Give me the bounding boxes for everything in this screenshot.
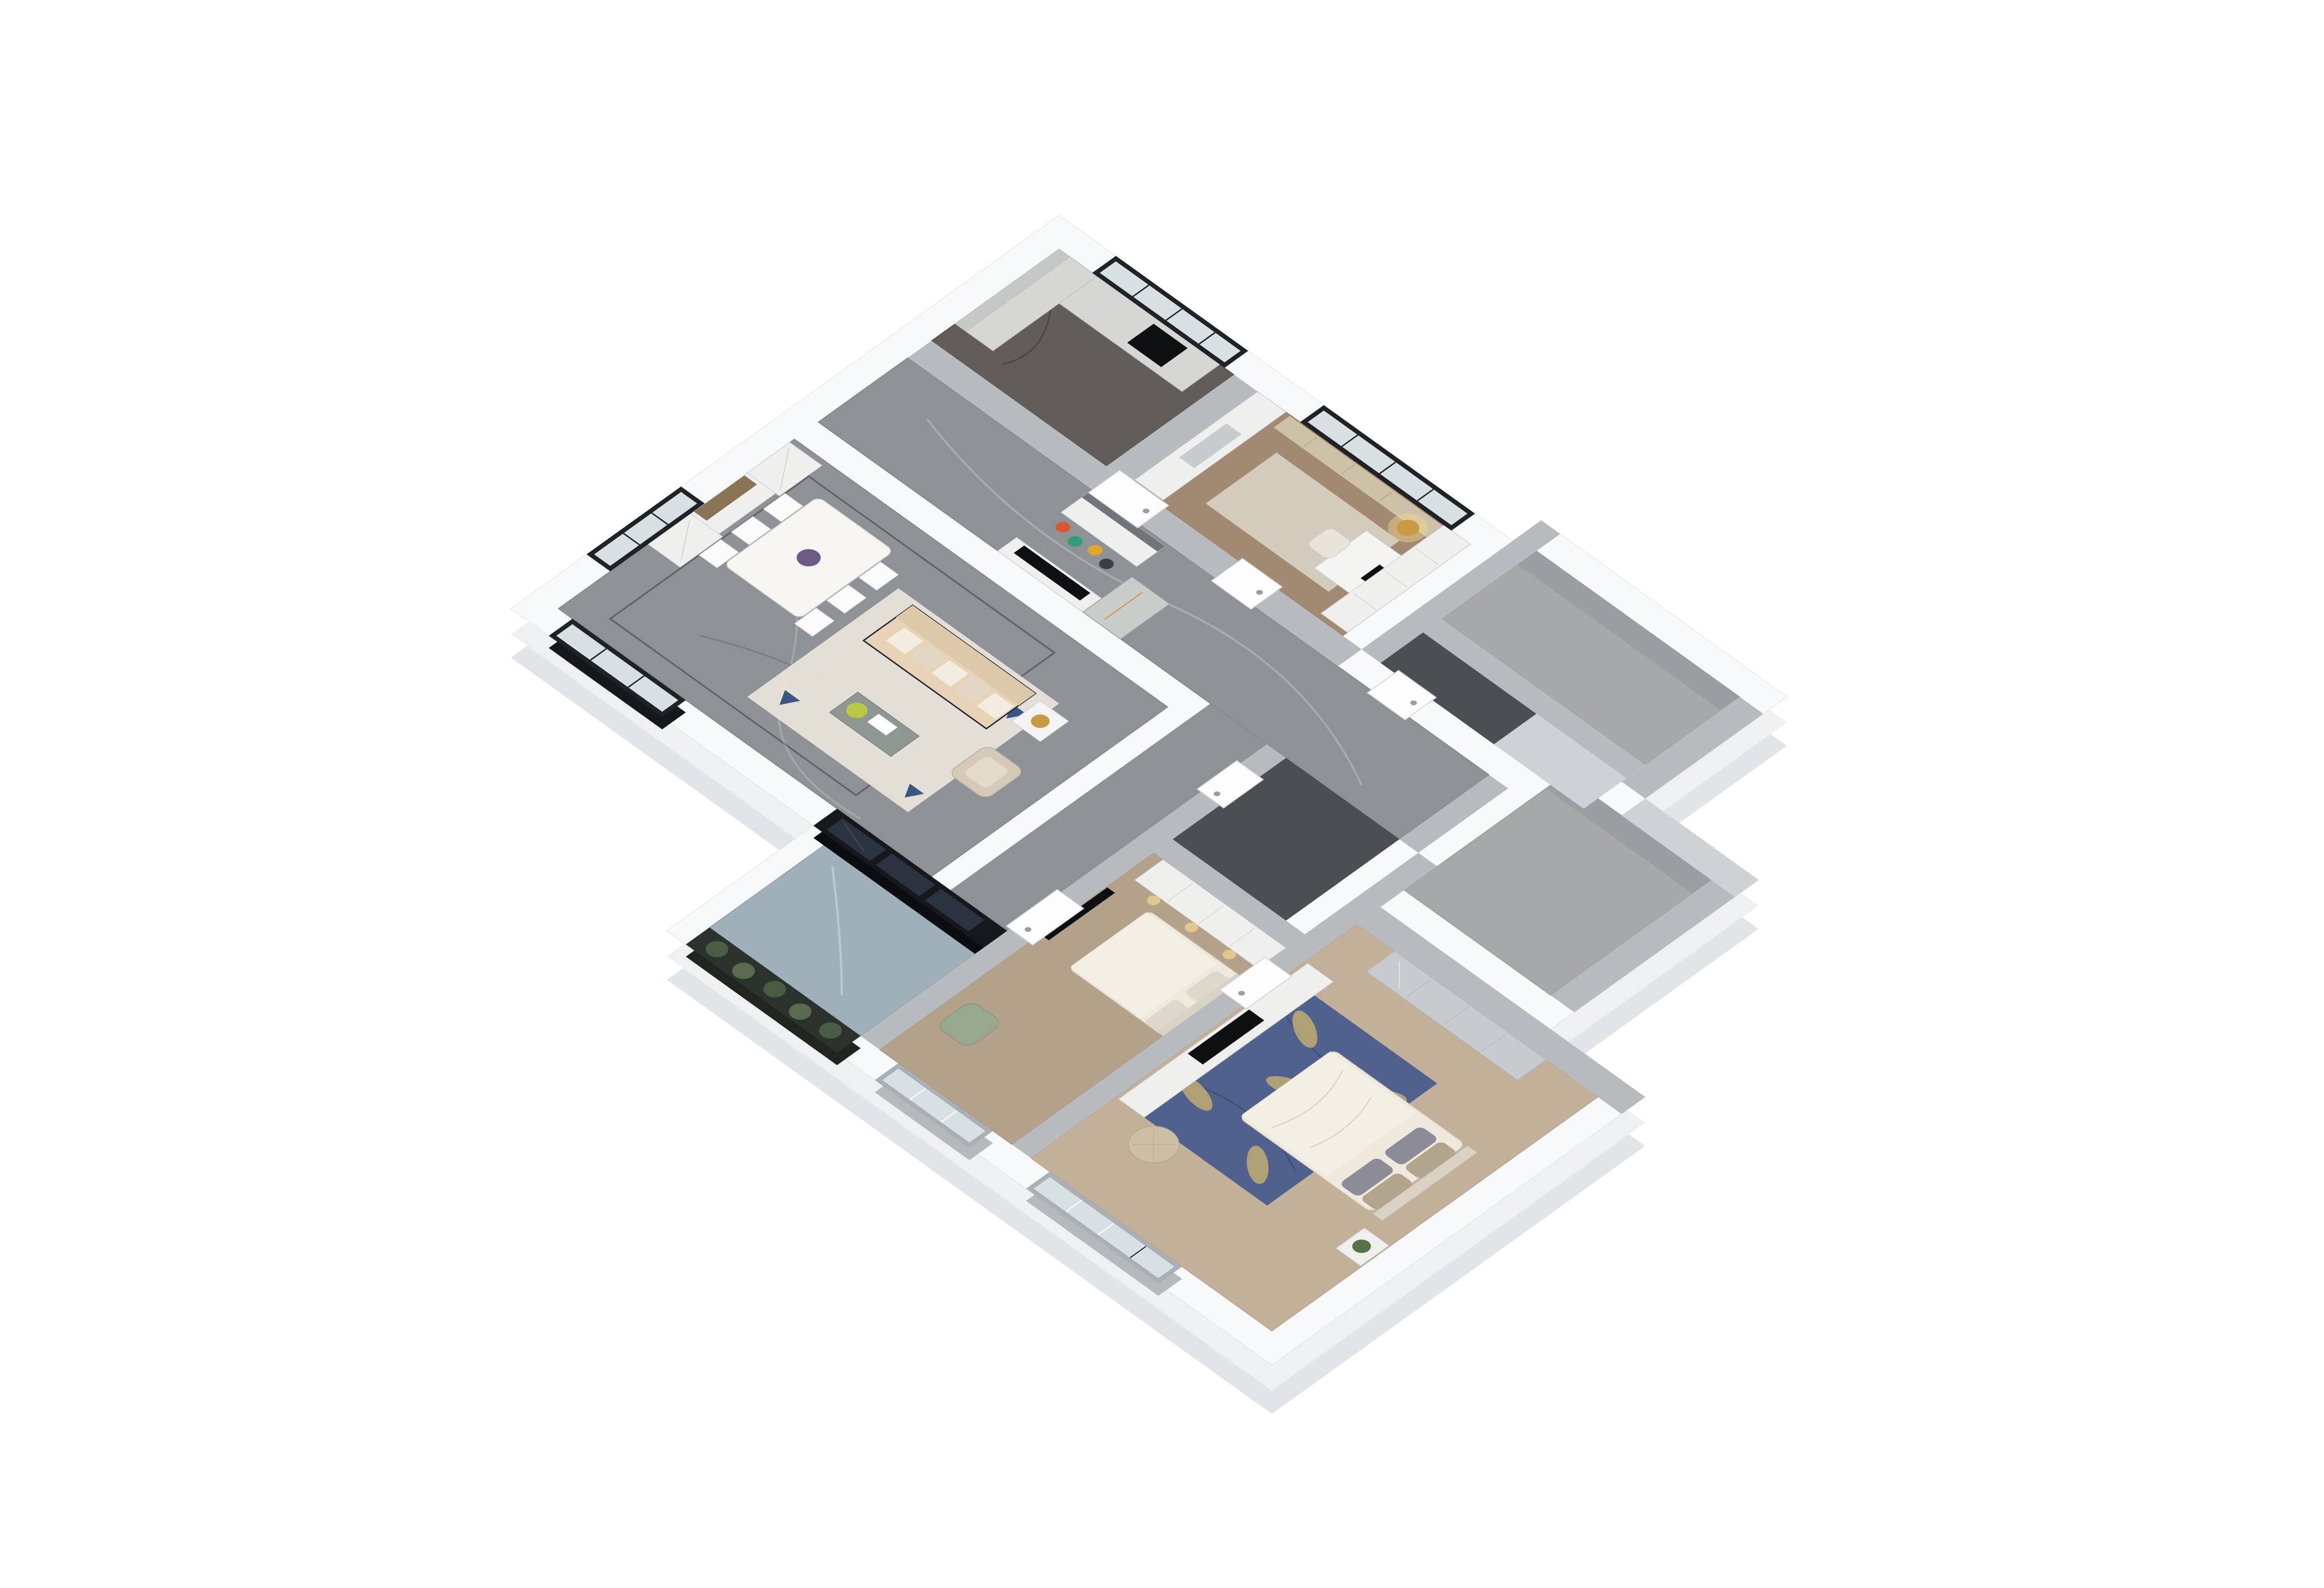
floor-plan-stage: [0, 0, 2324, 1588]
floor-plan-render: [0, 0, 2324, 1588]
floor-plate: [365, 195, 1995, 1365]
